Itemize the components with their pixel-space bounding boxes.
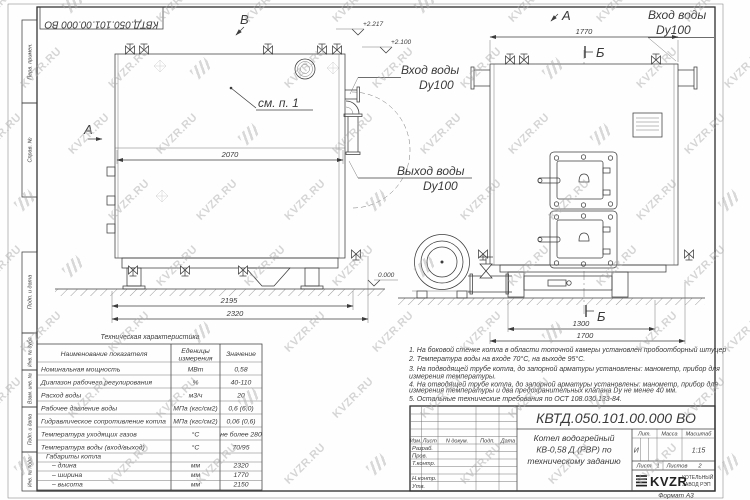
spec-cell-name: Номинальная мощность	[41, 367, 121, 374]
drain-valve-icon	[685, 250, 694, 260]
svg-text:0.000: 0.000	[378, 272, 395, 279]
valve-icon	[652, 54, 661, 64]
dim-1700: 1700	[490, 282, 685, 344]
kvzr-hatch-icon	[636, 476, 647, 486]
drawing-canvas: Перв. примен. Справ. № Подп. и дата Инв.…	[0, 0, 750, 500]
svg-text:Dy100: Dy100	[656, 23, 691, 37]
spec-cell-value: 40-110	[231, 380, 252, 387]
doc-number: КВТД.050.101.00.000 ВО	[536, 410, 696, 426]
sight-glass	[295, 59, 315, 79]
spec-cell-name: Габариты котла	[46, 453, 101, 461]
svg-text:+2.100: +2.100	[391, 39, 411, 46]
scale-label: Масштаб	[686, 432, 713, 438]
view-label-A-top: А	[561, 8, 571, 23]
callout-inlet-right: Вход воды Dy100	[648, 8, 714, 61]
dim-2070: 2070	[117, 150, 343, 164]
spec-cell-value: не более 280	[220, 431, 262, 439]
format-label: Формат А3	[658, 493, 694, 500]
margin-label-vzam: Взам. инв. №	[28, 372, 34, 404]
margin-label-inv-dubl: Инв. № дубл.	[28, 336, 34, 367]
svg-text:Б: Б	[597, 309, 606, 324]
title-block: Изм. Лист N докум. Подп. Дата Разраб. Пр…	[410, 406, 715, 500]
sheet-value: 1	[656, 464, 659, 470]
mass-label: Масса	[661, 432, 677, 438]
elevation-marks: +2.217 +2.100 0.000	[336, 21, 411, 286]
row-razrab: Разраб.	[412, 446, 433, 452]
drain-valve-icon	[239, 266, 248, 276]
col-podp: Подп.	[480, 439, 495, 445]
spec-cell-unit: МВт	[188, 367, 204, 374]
row-prov: Пров.	[412, 454, 427, 460]
spec-cell-name: Диапазон рабочего регулирования	[40, 379, 152, 387]
spec-cell-value: 70/95	[232, 445, 249, 452]
spec-cell-value: 1770	[233, 472, 248, 479]
inlet-elbow-pipe	[344, 87, 362, 155]
col-list: Лист	[422, 439, 438, 445]
spec-cell-name: – длина	[51, 462, 77, 470]
margin-label-podp2: Подп. и дата	[28, 414, 34, 446]
note-line: 2. Температура воды на входе 70°С, на вы…	[408, 355, 585, 363]
spec-cell-name: – ширина	[51, 472, 82, 479]
svg-text:2070: 2070	[221, 150, 240, 159]
spec-cell-value: 0,06 (0,6)	[226, 419, 255, 426]
furnace-door-upper	[538, 152, 617, 209]
spec-cell-value: 0,6 (6,0)	[228, 406, 253, 413]
svg-text:см. п. 1: см. п. 1	[258, 96, 299, 110]
top-stamp-doc-number: КВТД.050.101.00.000 ВО	[44, 19, 158, 30]
col-ndoc: N докум.	[446, 439, 468, 445]
spec-cell-unit: °С	[192, 431, 200, 439]
valve-icon	[126, 44, 135, 54]
margin-label-sprav: Справ. №	[28, 137, 34, 162]
row-tkontr: Т.контр.	[412, 461, 435, 467]
doc-title-line3: техническому заданию	[527, 456, 621, 466]
valve-icon	[506, 54, 515, 64]
view-label-B: В	[240, 12, 249, 27]
org-sub1: КОТЕЛЬНЫЙ	[682, 473, 714, 481]
svg-text:Выход воды: Выход воды	[397, 164, 465, 178]
spec-cell-unit: °С	[192, 444, 200, 452]
svg-text:Вход воды: Вход воды	[648, 8, 706, 22]
sheet-label: Лист	[636, 464, 652, 470]
water-nozzle-right	[678, 67, 697, 89]
spec-cell-value: 2150	[232, 482, 248, 489]
scale-value: 1:15	[692, 448, 706, 455]
svg-text:2195: 2195	[220, 296, 239, 305]
svg-text:Вход воды: Вход воды	[401, 63, 459, 77]
spec-cell-unit: МПа (кгс/см2)	[173, 406, 217, 413]
spec-cell-unit: мм	[191, 482, 201, 489]
spec-cell-name: Гидравлическое сопротивление котла	[41, 418, 166, 426]
callout-see-item: см. п. 1	[230, 87, 313, 110]
svg-text:Dy100: Dy100	[423, 179, 458, 193]
valve-icon	[333, 44, 342, 54]
spec-cell-name: – высота	[51, 482, 83, 489]
col-data: Дата	[500, 439, 516, 445]
valve-icon	[318, 44, 327, 54]
spec-cell-name: Температура уходящих газов	[41, 431, 137, 439]
spec-cell-unit: мм	[191, 463, 201, 470]
water-nozzle-left	[471, 67, 490, 89]
drawing-sheet: Перв. примен. Справ. № Подп. и дата Инв.…	[0, 0, 750, 500]
spec-cell-unit: %	[192, 380, 198, 387]
spec-col2-header: Еденицы	[181, 347, 209, 355]
spec-col2-header2: измерения	[178, 356, 212, 363]
spec-cell-value: 0,58	[234, 367, 247, 374]
note-line: 5. Остальные технические требования по О…	[409, 395, 622, 403]
svg-text:2320: 2320	[226, 309, 245, 318]
door-swing-arc	[352, 92, 410, 208]
furnace-door-lower	[538, 211, 617, 268]
drain-valve-icon	[181, 266, 190, 276]
spec-cell-name: Расход воды	[41, 392, 81, 400]
svg-text:1300: 1300	[573, 319, 591, 328]
row-utv: Утв.	[411, 484, 425, 490]
org-sub2: ЗАВОД РЭП	[682, 482, 711, 488]
spec-cell-unit: мм	[191, 472, 201, 479]
svg-text:Б: Б	[596, 45, 605, 60]
lit-value: И	[634, 448, 640, 455]
spec-col1-header: Наименование показателя	[61, 351, 148, 358]
org-logo: KVZR КОТЕЛЬНЫЙ ЗАВОД РЭП	[636, 473, 714, 489]
note-line: измерения температуры.	[409, 374, 496, 381]
valve-icon	[520, 54, 529, 64]
note-line: 1. На боковой стенке котла в области топ…	[409, 346, 726, 354]
svg-text:+2.217: +2.217	[363, 21, 383, 28]
note-line: 3. На подводящей трубе котла, до запорно…	[409, 365, 720, 373]
spec-cell-unit: МПа (кгс/см2)	[173, 419, 217, 426]
row-nkontr: Н.контр.	[412, 476, 437, 482]
valve-icon	[264, 44, 273, 54]
section-mark-B-top: Б	[585, 45, 605, 60]
svg-text:Dy100: Dy100	[419, 78, 454, 92]
technical-notes: 1. На боковой стенке котла в области топ…	[408, 346, 726, 403]
boiler-side-view: 2070 2195 2320 В А см. п. 1	[55, 12, 410, 323]
sheets-value: 2	[697, 464, 702, 470]
sheets-label: Листов	[665, 464, 687, 470]
doc-title-line1: Котел водогрейный	[534, 433, 615, 443]
doc-title-line2: КВ-0,58 Д (РВР) по	[536, 445, 611, 455]
spec-cell-value: 20	[236, 393, 245, 400]
valve-icon	[140, 44, 149, 54]
spec-cell-name: Температура воды (вход/выход)	[41, 444, 145, 452]
spec-cell-name: Рабочее давление воды	[41, 405, 117, 413]
svg-text:1700: 1700	[577, 331, 595, 340]
margin-label-perv: Перв. примен.	[28, 43, 34, 80]
spec-table: Техническая характеристика Наименование …	[37, 334, 262, 490]
callout-inlet-left: Вход воды Dy100	[350, 63, 459, 94]
spec-cell-unit: м3/ч	[189, 393, 203, 400]
spec-col3-header: Значение	[226, 351, 256, 358]
boiler-base	[500, 265, 666, 297]
margin-label-inv-podl: Инв. № подл.	[28, 456, 34, 487]
col-izm: Изм.	[410, 439, 422, 445]
lit-label: Лит.	[637, 432, 651, 438]
margin-label-podp1: Подп. и дата	[28, 275, 34, 309]
svg-text:1770: 1770	[576, 27, 594, 36]
note-line: измерения температуры и два предохраните…	[409, 387, 677, 395]
drain-valve-icon	[352, 250, 361, 260]
callout-outlet: Выход воды Dy100	[349, 161, 472, 193]
drain-valve-icon	[129, 266, 138, 276]
spec-cell-value: 2320	[232, 463, 248, 470]
spec-table-title: Техническая характеристика	[100, 334, 199, 341]
view-label-A-left: А	[83, 122, 93, 137]
